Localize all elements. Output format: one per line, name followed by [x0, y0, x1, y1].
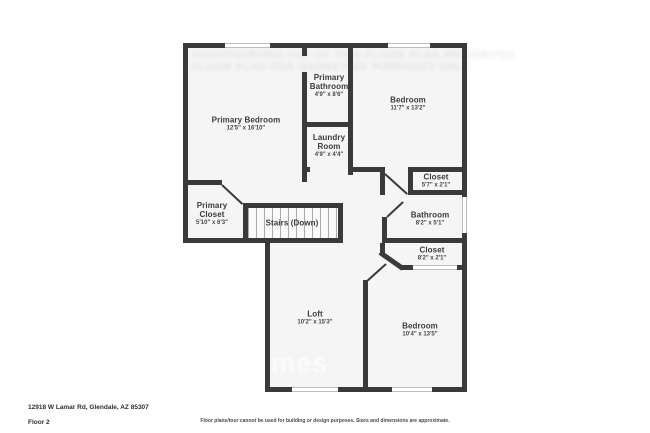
room-label-primary-bedroom: Primary Bedroom 12'5" x 16'10": [186, 116, 306, 133]
wall-bathroom-bottom: [385, 238, 463, 243]
room-dims: 8'2" x 5'1": [390, 221, 470, 228]
room-dims: 4'9" x 8'6": [300, 92, 358, 99]
window-bottom-bedroom: [392, 387, 432, 392]
room-label-closet-lower: Closet 8'2" x 2'1": [392, 246, 472, 263]
room-label-primary-closet: Primary Closet 5'10" x 6'3": [185, 201, 239, 227]
room-dims: 12'5" x 16'10": [186, 126, 306, 133]
room-label-laundry-room: Laundry Room 4'9" x 4'4": [306, 133, 352, 159]
wall-closet-bottom: [408, 190, 463, 195]
room-dims: 5'10" x 6'3": [185, 220, 239, 227]
room-label-bedroom-lower: Bedroom 10'4" x 13'5": [375, 322, 465, 339]
window-top-bedroom: [388, 43, 430, 48]
room-label-closet-top: Closet 5'7" x 2'1": [401, 173, 471, 190]
watermark-line-1: UNAUTHORIZED USE OF THIS FLOOR PLAN PROH…: [192, 50, 460, 61]
room-dims: 8'2" x 2'1": [392, 256, 472, 263]
room-name: Laundry Room: [306, 133, 352, 151]
room-label-bathroom: Bathroom 8'2" x 5'1": [390, 211, 470, 228]
window-bottom-loft: [292, 387, 338, 392]
watermark-corner-fragment: mes: [271, 348, 328, 379]
wall-primary-bathroom-jamb: [302, 48, 307, 56]
room-name: Closet: [401, 173, 471, 182]
room-name: Stairs (Down): [247, 219, 337, 228]
wall-laundry-door-jamb: [302, 167, 310, 172]
watermark-line-2: FLOOR PLAN FOR MARKETING PURPOSES ONLY: [192, 62, 460, 73]
room-name: Bathroom: [390, 211, 470, 220]
room-label-loft: Loft 10'2" x 15'3": [270, 310, 360, 327]
room-name: Primary Bedroom: [186, 116, 306, 125]
disclaimer-text: Floor plans/tour cannot be used for buil…: [170, 418, 480, 424]
wall-outer-bottom-left: [183, 238, 343, 243]
room-label-bedroom-top: Bedroom 11'7" x 13'2": [363, 96, 453, 113]
wall-loft-bedroom: [363, 280, 368, 392]
room-dims: 4'9" x 4'4": [306, 152, 352, 159]
wall-lower-closet-bottom-right: [457, 265, 463, 270]
wall-lower-closet-bottom-left: [400, 265, 413, 270]
room-name: Bedroom: [375, 322, 465, 331]
room-dims: 11'7" x 13'2": [363, 106, 453, 113]
room-name: Loft: [270, 310, 360, 319]
wall-closet-top: [408, 167, 463, 172]
wall-primary-bedroom-bottom: [183, 180, 222, 185]
room-label-primary-bathroom: Primary Bathroom 4'9" x 8'6": [300, 73, 358, 99]
address-text: 12918 W Lamar Rd, Glendale, AZ 85307: [28, 404, 149, 411]
wall-primary-bathroom-bottom: [302, 122, 353, 127]
room-dims: 10'2" x 15'3": [270, 320, 360, 327]
room-label-stairs: Stairs (Down): [247, 219, 337, 228]
room-name: Closet: [392, 246, 472, 255]
floor-label: Floor 2: [28, 419, 50, 426]
floor-plan-page: UNAUTHORIZED USE OF THIS FLOOR PLAN PROH…: [0, 0, 650, 433]
room-name: Bedroom: [363, 96, 453, 105]
room-name: Primary Closet: [185, 201, 239, 219]
window-top-primary-bedroom: [225, 43, 270, 48]
room-dims: 10'4" x 13'5": [375, 332, 465, 339]
room-name: Primary Bathroom: [300, 73, 358, 91]
opening-lower-closet: [413, 265, 457, 270]
room-dims: 5'7" x 2'1": [401, 183, 471, 190]
wall-stairs-right: [338, 203, 343, 243]
